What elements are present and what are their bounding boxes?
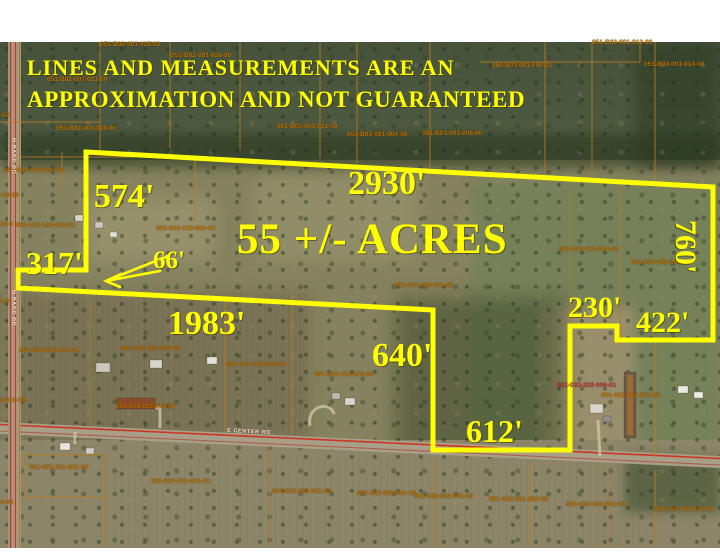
disclaimer-line-1: LINES AND MEASUREMENTS ARE AN xyxy=(27,55,455,81)
aerial-map-screenshot: 051-B02-001-025-02051-B02-001-026-00051-… xyxy=(0,0,720,552)
map-linework xyxy=(0,0,720,552)
parcel-id-label: 051-033-202-006-01 xyxy=(557,382,616,389)
measurement-1983: 1983' xyxy=(168,305,245,343)
disclaimer-line-2: APPROXIMATION AND NOT GUARANTEED xyxy=(27,87,525,113)
parcel-id-label: 051-B03-001-007-01 xyxy=(492,62,552,69)
measurement-640: 640' xyxy=(372,337,432,375)
parcel-id-partial: 04-0 xyxy=(0,221,13,228)
parcel-id-label: 051-033-302-001-02 xyxy=(357,490,416,497)
parcel-id-partial: -03-00 xyxy=(0,192,19,199)
parcel-id-label: 051-033-103-006-00 xyxy=(226,361,285,368)
parcel-id-partial: 4-00 xyxy=(0,499,13,506)
measurement-317: 317' xyxy=(26,245,83,282)
parcel-id-label: 051-033-103-007-00 xyxy=(121,345,180,352)
parcel-id-label: 051-033-301-001-04 xyxy=(29,464,88,471)
left-road-label: N BARD RD xyxy=(10,290,16,332)
parcel-id-label: 051-033-302-001-01 xyxy=(272,488,331,495)
parcel-id-label: 051-B03-001-004-00 xyxy=(347,131,407,138)
measurement-612: 612' xyxy=(466,413,523,450)
parcel-id-label: 051-033-103-002-01 xyxy=(16,222,75,229)
measurement-574: 574' xyxy=(94,178,154,216)
parcel-id-label: 051-033-301-003-00 xyxy=(489,496,548,503)
parcel-id-label: 051-033-301-001-01 xyxy=(151,478,210,485)
parcel-id-label: 051-B02-001-028-00 xyxy=(56,125,116,132)
measurement-2930: 2930' xyxy=(348,165,425,203)
parcel-id-label: 051-033-102-001-02 xyxy=(601,392,660,399)
measurement-422: 422' xyxy=(636,306,689,340)
measurement-230: 230' xyxy=(568,291,621,325)
parcel-id-label: 051-033-104-003-00 xyxy=(314,371,373,378)
parcel-id-label: 051-033-401-002-00 xyxy=(654,506,713,513)
parcel-id-label: 051-033-103-003-00 xyxy=(19,347,78,354)
parcel-id-label: 051-B03-001-006-00 xyxy=(422,130,482,137)
left-road-label: N BARD RD xyxy=(10,138,16,180)
parcel-id-partial: 1-0 xyxy=(0,298,9,305)
parcel-id-label: 051-033-401-001-00 xyxy=(566,501,625,508)
parcel-id-partial: 0-219-00 xyxy=(0,397,26,404)
parcel-id-label: 051-033-302-001-03 xyxy=(414,493,473,500)
measurement-760: 760' xyxy=(668,220,702,273)
parcel-id-label: 051-033-103-010-00 xyxy=(116,403,175,410)
measurement-66: 66' xyxy=(153,247,185,275)
parcel-id-label: 051-B02-001-025-02 xyxy=(100,41,160,48)
acreage-label: 55 +/- ACRES xyxy=(237,215,508,264)
parcel-id-label: 051-B03-001-013-00 xyxy=(592,39,652,46)
parcel-id-label: 051-033-103-002-02 xyxy=(156,225,215,232)
parcel-id-label: 051-033-104-001-02 xyxy=(394,282,453,289)
parcel-id-label: 051-033-202-004-00 xyxy=(559,246,618,253)
bottom-road xyxy=(0,422,720,468)
parcel-id-label: 051-B03-001-014-00 xyxy=(644,61,704,68)
parcel-id-label: 051-B03-001-001-00 xyxy=(277,123,337,130)
parcel-boundary-lines xyxy=(0,42,655,548)
parcel-id-partial: -02 xyxy=(0,112,9,119)
